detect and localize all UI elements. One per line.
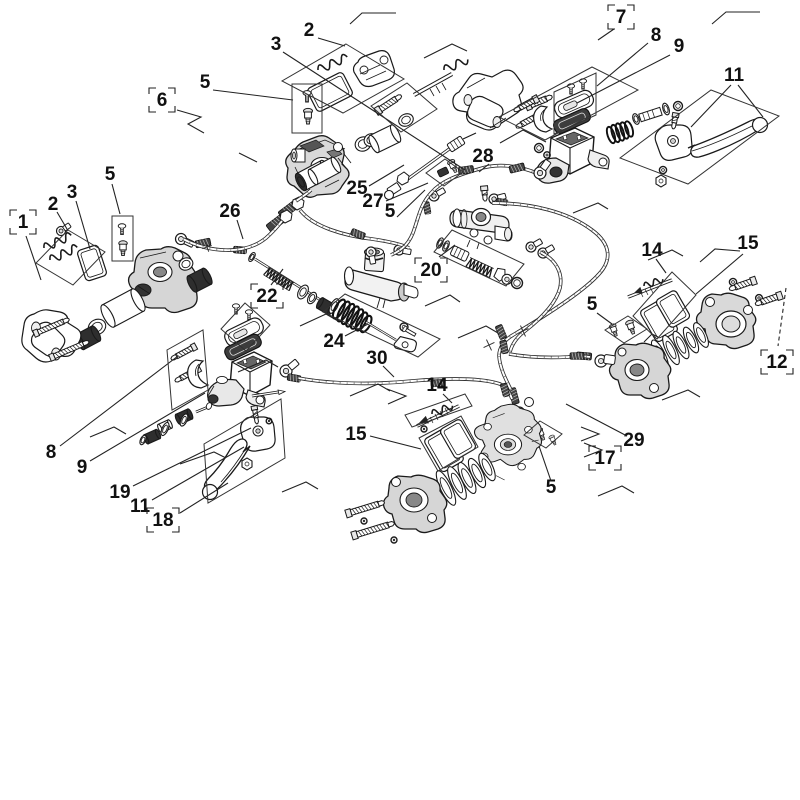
svg-text:5: 5 <box>385 201 396 222</box>
svg-text:9: 9 <box>674 36 685 57</box>
svg-text:29: 29 <box>623 430 644 451</box>
svg-text:12: 12 <box>766 352 787 373</box>
svg-text:9: 9 <box>77 457 88 478</box>
svg-text:18: 18 <box>152 510 173 531</box>
svg-text:3: 3 <box>67 182 78 203</box>
svg-text:28: 28 <box>472 146 493 167</box>
svg-text:8: 8 <box>46 442 57 463</box>
svg-text:2: 2 <box>304 20 315 41</box>
svg-text:19: 19 <box>109 482 130 503</box>
svg-text:14: 14 <box>426 375 448 396</box>
svg-text:5: 5 <box>587 294 598 315</box>
svg-text:5: 5 <box>105 164 116 185</box>
svg-text:8: 8 <box>651 25 662 46</box>
svg-text:6: 6 <box>157 90 168 111</box>
svg-text:1: 1 <box>18 212 29 233</box>
svg-text:11: 11 <box>724 65 745 86</box>
svg-text:24: 24 <box>323 331 345 352</box>
svg-text:15: 15 <box>737 233 759 254</box>
svg-text:3: 3 <box>271 34 282 55</box>
svg-text:20: 20 <box>420 260 441 281</box>
svg-text:22: 22 <box>256 286 277 307</box>
svg-text:7: 7 <box>616 7 627 28</box>
svg-text:26: 26 <box>219 201 240 222</box>
svg-text:27: 27 <box>362 191 383 212</box>
svg-text:30: 30 <box>366 348 387 369</box>
svg-text:15: 15 <box>345 424 367 445</box>
svg-text:5: 5 <box>200 72 211 93</box>
svg-text:2: 2 <box>48 194 59 215</box>
